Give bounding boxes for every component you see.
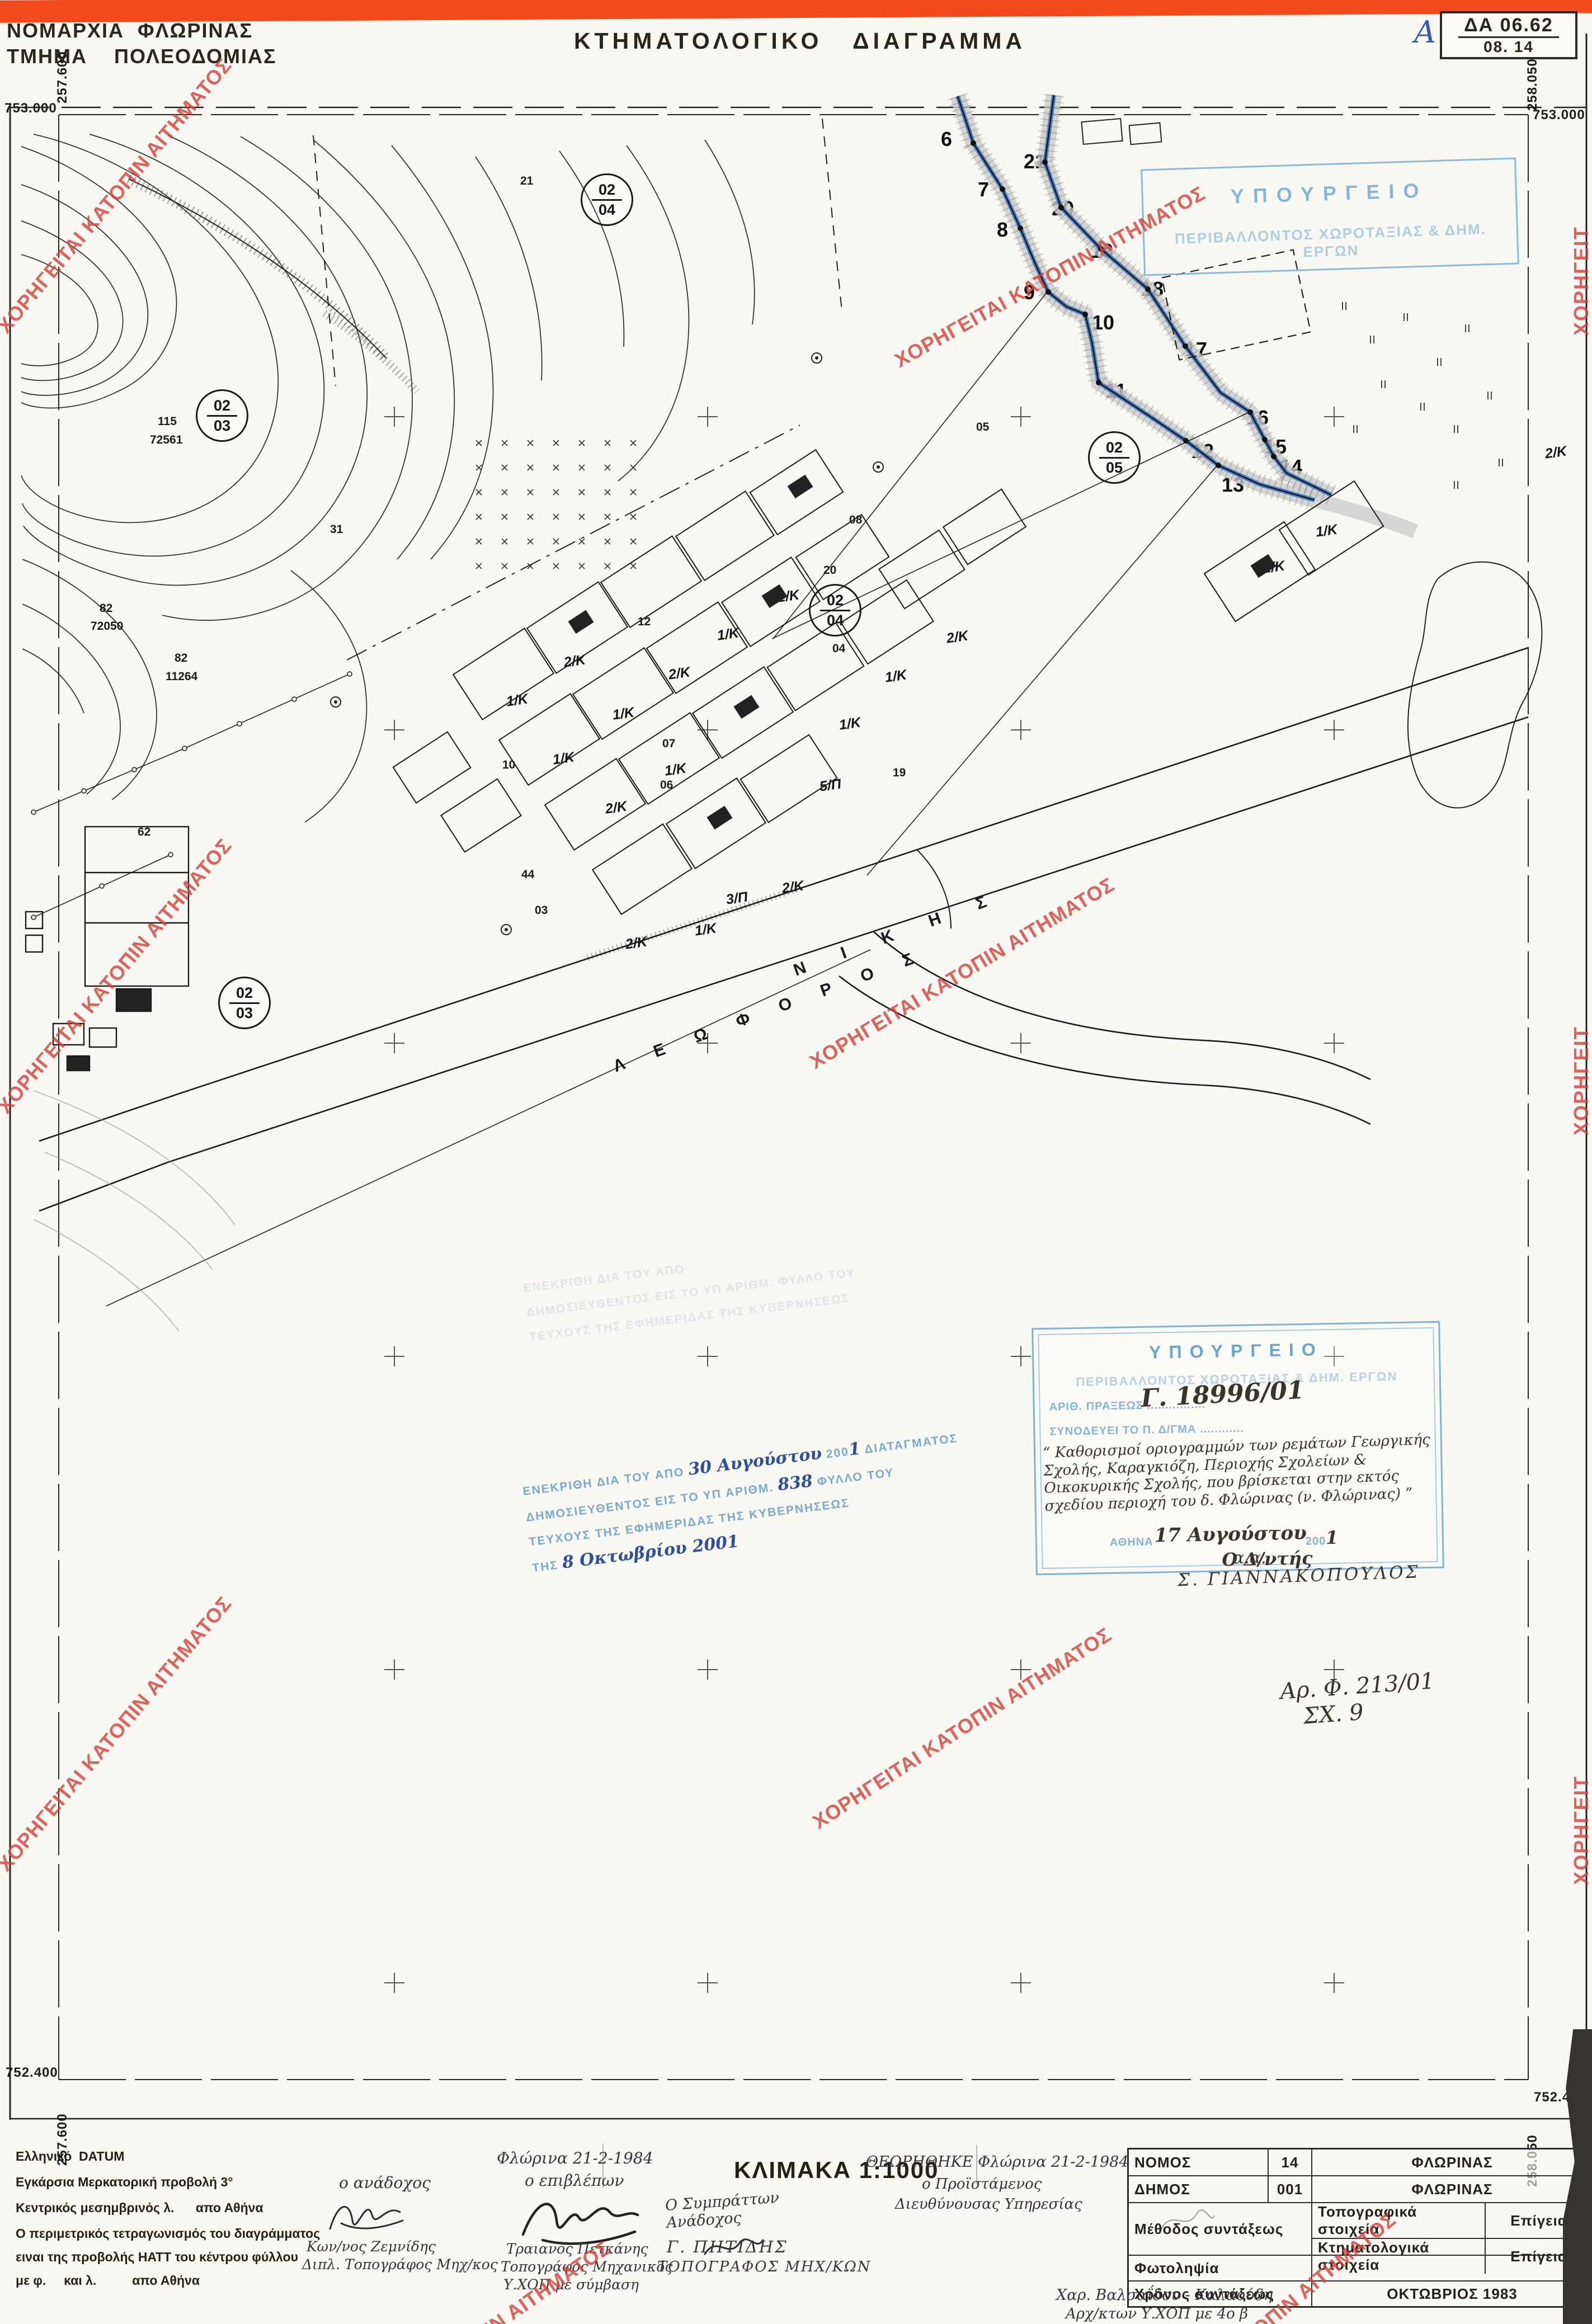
- fold-mark: [976, 2145, 977, 2184]
- gazette-number-hand: 838: [776, 1471, 813, 1495]
- watermark-partial: ΧΟΡΗΓΕΙΤ: [1570, 1026, 1592, 1135]
- dimos-code: 001: [1268, 2176, 1311, 2202]
- ministry-stamp-top: ΥΠΟΥΡΓΕΙΟ ΠΕΡΙΒΑΛΛΟΝΤΟΣ ΧΩΡΟΤΑΞΙΑΣ & ΔΗΜ…: [1141, 158, 1519, 276]
- time-value: ΟΚΤΩΒΡΙΟΣ 1983: [1311, 2281, 1592, 2306]
- ministry-stamp-line2: ΠΕΡΙΒΑΛΛΟΝΤΟΣ ΧΩΡΟΤΑΞΙΑΣ & ΔΗΜ. ΕΡΓΩΝ: [1144, 220, 1518, 266]
- decree-year-hand: 1: [847, 1439, 861, 1459]
- contour-lines: [21, 134, 755, 822]
- dimos-label: ΔΗΜΟΣ: [1129, 2176, 1268, 2202]
- sheet-frame: [10, 34, 1586, 2324]
- gazette-sheet-label: ΦΥΛΛΟ ΤΟΥ: [816, 1466, 894, 1488]
- survey-points: [331, 353, 883, 935]
- method-row-topo: Τοπογραφικά στοιχεία Επίγεια: [1312, 2203, 1592, 2238]
- table-row-dimos: ΔΗΜΟΣ 001 ΦΛΩΡΙΝΑΣ: [1129, 2175, 1592, 2202]
- coord-bottom-left-x: 752.400: [6, 2065, 58, 2081]
- decree-subject-handwritten: “ Καθορισμοί οριογραμμών των ρεμάτων Γεω…: [1043, 1431, 1433, 1516]
- photo-label: Φωτοληψία: [1129, 2256, 1311, 2280]
- reviewer-title: Αρχ/κτων Υ.ΧΟΠ με 4ο β: [1066, 2306, 1248, 2322]
- coord-top-left-x: 753.000: [4, 101, 57, 116]
- stamp-date-hand: 17 Αυγούστου: [1154, 1522, 1307, 1547]
- fold-mark: [602, 2143, 604, 2188]
- table-row-nomos: ΝΟΜΟΣ 14 ΦΛΩΡΙΝΑΣ: [1129, 2149, 1592, 2175]
- map-artwork: [0, 0, 1592, 2324]
- ministry-stamp-main: ΥΠΟΥΡΓΕΙΟ ΠΕΡΙΒΑΛΛΟΝΤΟΣ ΧΩΡΟΤΑΞΙΑΣ & ΔΗΜ…: [1031, 1321, 1444, 1576]
- nomos-code: 14: [1268, 2149, 1311, 2175]
- method-label: Μέθοδος συντάξεως: [1129, 2203, 1311, 2255]
- reviewer-name: Χαρ. Βαλσαΐδου - Καλαούδη: [1056, 2287, 1273, 2304]
- file-ref-line2: ΣΧ. 9: [1303, 1699, 1365, 1729]
- watermark-partial: ΧΟΡΗΓΕΙΤ: [1570, 226, 1592, 336]
- slope-hatching: [129, 179, 800, 958]
- coord-top-right-y: 258.050: [1525, 58, 1541, 111]
- coord-top-left-y: 257.600: [55, 51, 70, 103]
- stamp-year-hand: 1: [1325, 1527, 1338, 1548]
- cadastral-map-sheet: ΝΟΜΑΡΧΙΑ ΦΛΩΡΙΝΑΣ ΤΜΗΜΑ ΠΟΛΕΟΔΟΜΙΑΣ ΚΤΗΜ…: [0, 0, 1592, 2324]
- of-date-label: ΤΗΣ: [531, 1559, 559, 1575]
- nomos-label: ΝΟΜΟΣ: [1129, 2149, 1268, 2175]
- aa-abbrev: α.α.: [1233, 1548, 1266, 1568]
- sheet-info-table: ΝΟΜΟΣ 14 ΦΛΩΡΙΝΑΣ ΔΗΜΟΣ 001 ΦΛΩΡΙΝΑΣ Μέθ…: [1127, 2148, 1592, 2308]
- decree-year-print: 200: [826, 1445, 850, 1461]
- appr-line2b: ΦΥΛΛΟ ΤΟΥ: [778, 1266, 856, 1289]
- place-label: ΑΘΗΝΑ: [1110, 1536, 1153, 1549]
- dimos-value: ΦΛΩΡΙΝΑΣ: [1311, 2176, 1592, 2202]
- nomos-value: ΦΛΩΡΙΝΑΣ: [1311, 2149, 1592, 2175]
- coord-top-right-x: 753.000: [1533, 107, 1585, 123]
- survey-lines: [106, 119, 1542, 1306]
- watermark-partial: ΧΟΡΗΓΕΙΤ: [1570, 1775, 1592, 1885]
- coord-bottom-left-y: 257.600: [55, 2113, 70, 2166]
- roads: [39, 648, 1528, 1211]
- stream-boundary: [958, 95, 1415, 531]
- topo-label: Τοπογραφικά στοιχεία: [1312, 2203, 1485, 2238]
- stamp-year-print: 200: [1306, 1535, 1326, 1548]
- decree-word: ΔΙΑΤΑΓΜΑΤΟΣ: [864, 1432, 958, 1456]
